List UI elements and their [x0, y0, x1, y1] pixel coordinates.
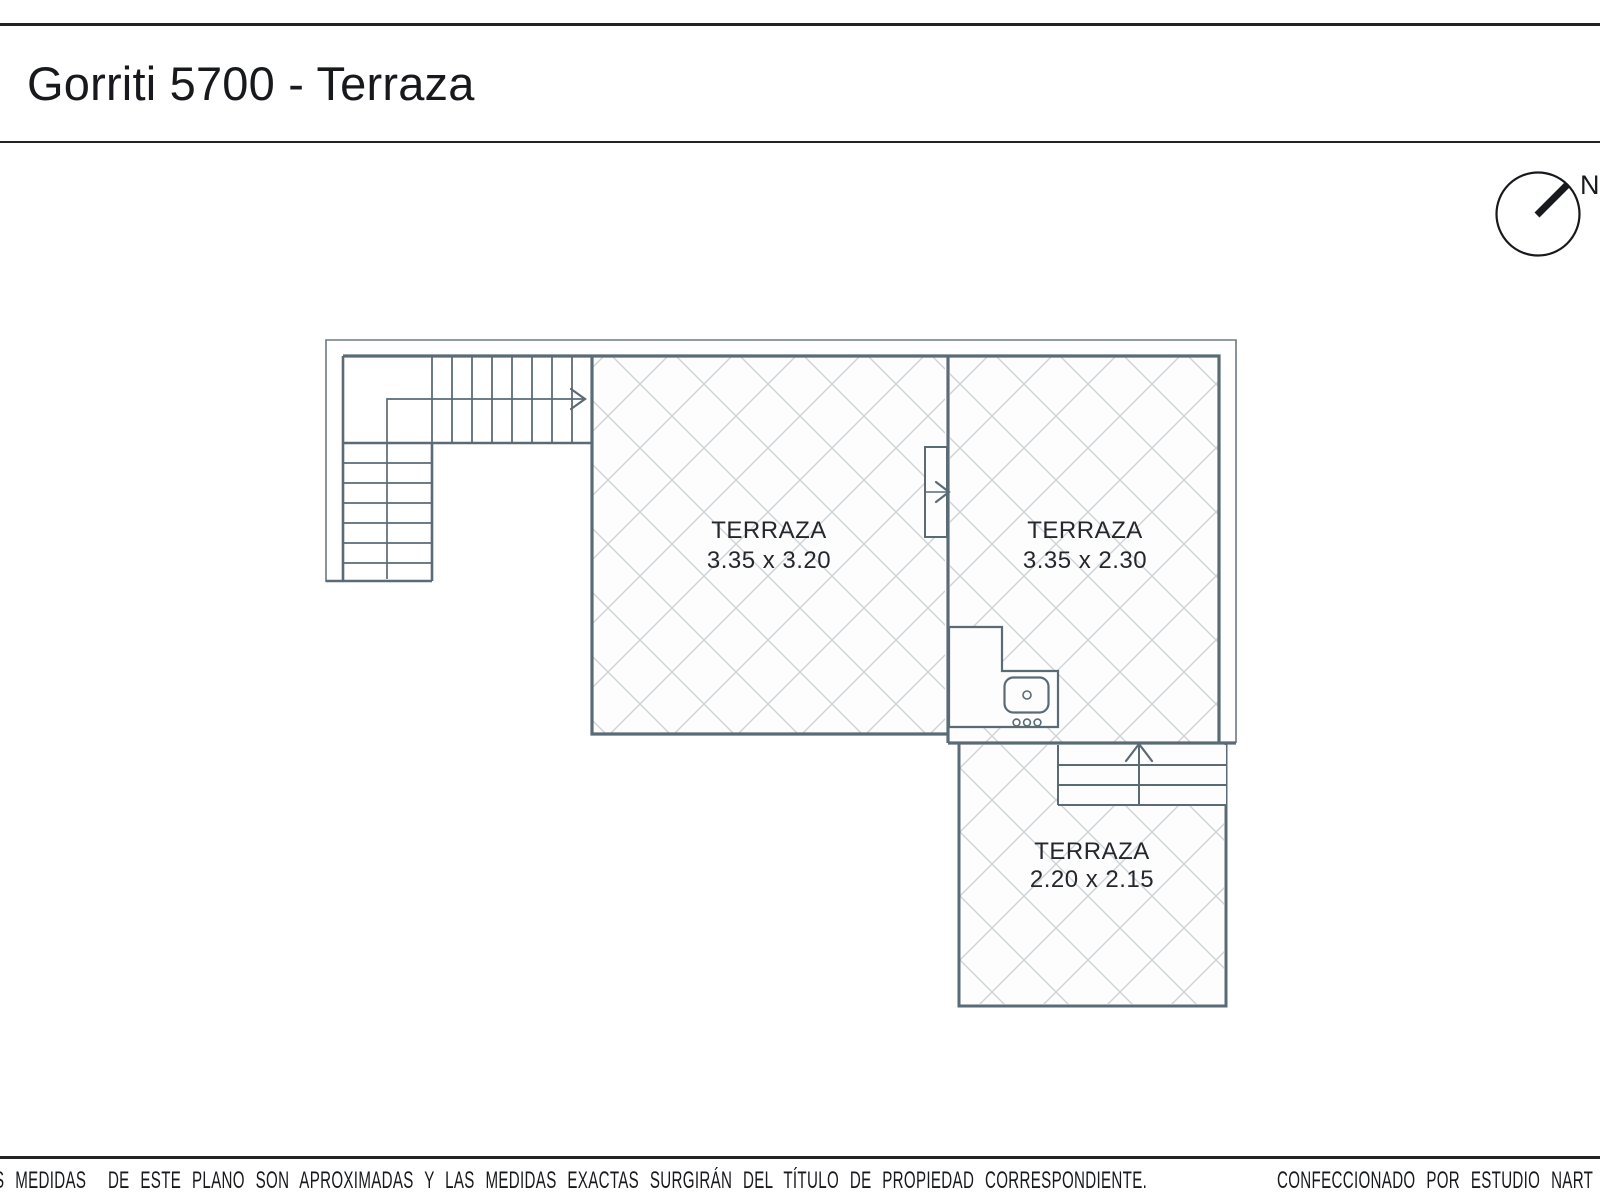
floor-plan-drawing: TERRAZA 3.35 x 3.20 TERRAZA 3.35 x 2.30 …: [0, 0, 1600, 1200]
door-opening: [925, 447, 949, 537]
floor-plan-page: Gorriti 5700 - Terraza: [0, 0, 1600, 1200]
north-needle-icon: [1537, 185, 1567, 215]
staircase: [326, 356, 592, 581]
room-dimensions-terraza-main: 3.35 x 3.20: [707, 547, 831, 574]
room-dimensions-terraza-lower: 2.20 x 2.15: [1030, 866, 1154, 893]
north-label: N: [1580, 170, 1600, 200]
room-label-terraza-main: TERRAZA: [711, 517, 827, 544]
north-compass: N: [1497, 170, 1600, 256]
steps-landing: [1059, 745, 1226, 805]
room-label-terraza-lower: TERRAZA: [1034, 838, 1150, 865]
room-label-terraza-right: TERRAZA: [1027, 517, 1143, 544]
terrace-main-hatch: [593, 357, 945, 733]
room-dimensions-terraza-right: 3.35 x 2.30: [1023, 547, 1147, 574]
stair-walk-line: [387, 399, 583, 579]
footer-disclaimer: S MEDIDAS DE ESTE PLANO SON APROXIMADAS …: [0, 1167, 1147, 1195]
sink-basin-icon: [1005, 678, 1049, 713]
terrace-hatch-areas: [593, 357, 1224, 1004]
footer-credit: CONFECCIONADO POR ESTUDIO NART: [1277, 1167, 1593, 1195]
footer-rule: [0, 1156, 1600, 1159]
lower-steps: [1058, 744, 1226, 805]
